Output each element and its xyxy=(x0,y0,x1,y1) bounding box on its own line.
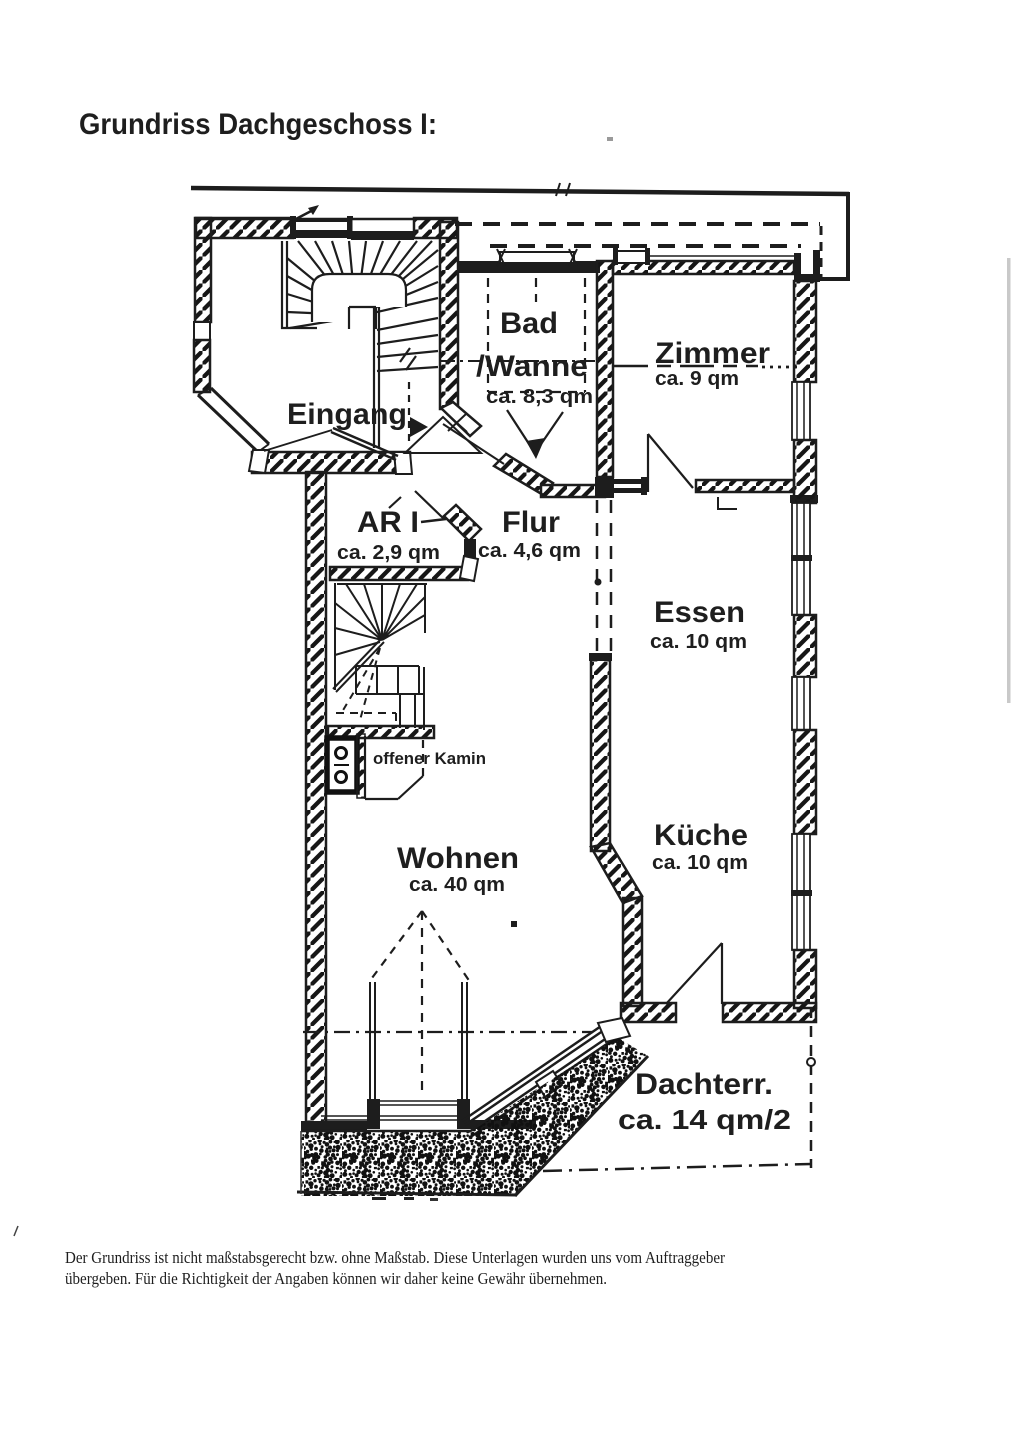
svg-text:ca. 14 qm/2: ca. 14 qm/2 xyxy=(618,1104,791,1135)
svg-text:ca. 9 qm: ca. 9 qm xyxy=(655,368,739,390)
svg-text:/Wanne: /Wanne xyxy=(476,350,588,383)
svg-text:Der Grundriss ist nicht maßsta: Der Grundriss ist nicht maßstabsgerecht … xyxy=(65,1248,725,1267)
svg-text:ca. 10 qm: ca. 10 qm xyxy=(650,631,747,653)
svg-text:ca. 10 qm: ca. 10 qm xyxy=(652,852,748,874)
svg-text:Essen: Essen xyxy=(654,596,745,629)
svg-text:ca. 2,9 qm: ca. 2,9 qm xyxy=(337,542,440,564)
svg-text:Flur: Flur xyxy=(502,506,560,539)
svg-text:AR I: AR I xyxy=(357,506,419,539)
svg-text:Dachterr.: Dachterr. xyxy=(635,1068,773,1101)
svg-text:Bad: Bad xyxy=(500,307,558,340)
svg-text:Wohnen: Wohnen xyxy=(397,842,519,875)
svg-text:Eingang: Eingang xyxy=(287,398,407,431)
svg-text:ca. 8,3 qm: ca. 8,3 qm xyxy=(486,386,593,408)
svg-text:Grundriss Dachgeschoss I:: Grundriss Dachgeschoss I: xyxy=(79,108,437,141)
svg-text:Küche: Küche xyxy=(654,819,748,852)
svg-text:offener Kamin: offener Kamin xyxy=(373,749,486,768)
svg-text:ca. 40 qm: ca. 40 qm xyxy=(409,874,505,896)
svg-text:ca. 4,6 qm: ca. 4,6 qm xyxy=(478,540,581,562)
svg-text:übergeben. Für die Richtigkeit: übergeben. Für die Richtigkeit der Angab… xyxy=(65,1269,607,1288)
